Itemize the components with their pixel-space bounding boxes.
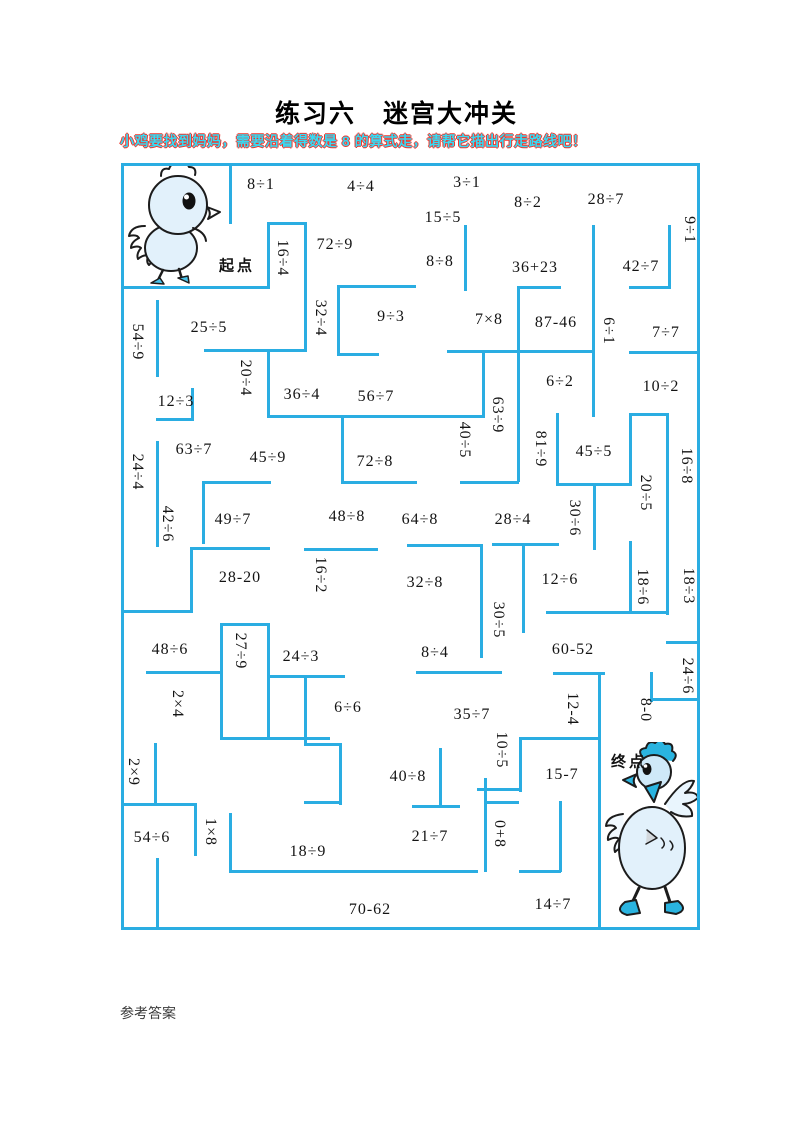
maze-expression: 16÷8 bbox=[677, 448, 695, 485]
maze-expression: 6÷6 bbox=[334, 699, 362, 717]
maze-expression: 8-0 bbox=[636, 698, 654, 722]
maze-expression: 6÷1 bbox=[599, 317, 617, 345]
maze-wall bbox=[156, 418, 194, 421]
maze-expression: 1×8 bbox=[201, 818, 219, 846]
maze-expression: 14÷7 bbox=[535, 896, 572, 914]
maze-expression: 63÷9 bbox=[488, 397, 506, 434]
maze-expression: 32÷8 bbox=[407, 574, 444, 592]
maze-wall bbox=[484, 801, 519, 804]
maze-wall bbox=[204, 349, 307, 352]
maze-wall bbox=[666, 641, 699, 644]
maze-expression: 8÷2 bbox=[514, 194, 542, 212]
maze-expression: 56÷7 bbox=[358, 388, 395, 406]
maze-wall bbox=[416, 671, 502, 674]
maze-wall bbox=[447, 350, 594, 353]
maze-expression: 32÷4 bbox=[311, 300, 329, 337]
maze-wall bbox=[121, 610, 192, 613]
maze-wall bbox=[492, 543, 559, 546]
maze-wall bbox=[650, 698, 699, 701]
maze-wall bbox=[629, 541, 632, 613]
maze-wall bbox=[412, 805, 460, 808]
maze-wall bbox=[559, 801, 562, 872]
maze-expression: 7×8 bbox=[475, 311, 503, 329]
maze-expression: 36÷4 bbox=[284, 386, 321, 404]
maze-expression: 48÷6 bbox=[152, 641, 189, 659]
maze-wall bbox=[121, 163, 124, 930]
start-chick-image bbox=[123, 164, 229, 286]
maze-expression: 12÷6 bbox=[542, 571, 579, 589]
maze-expression: 10÷2 bbox=[643, 378, 680, 396]
maze-wall bbox=[121, 286, 270, 289]
maze-wall bbox=[519, 737, 600, 740]
maze-wall bbox=[439, 748, 442, 807]
maze-wall bbox=[146, 671, 222, 674]
maze-wall bbox=[484, 778, 487, 872]
maze-wall bbox=[156, 858, 159, 928]
maze-wall bbox=[121, 927, 700, 930]
maze-wall bbox=[304, 675, 307, 745]
maze-expression: 49÷7 bbox=[215, 511, 252, 529]
maze-wall bbox=[519, 737, 522, 792]
maze-wall bbox=[666, 413, 669, 615]
maze-wall bbox=[464, 225, 467, 291]
maze-expression: 4÷4 bbox=[347, 178, 375, 196]
maze-wall bbox=[267, 623, 270, 740]
maze-expression: 18÷6 bbox=[633, 569, 651, 606]
maze-wall bbox=[304, 743, 342, 746]
end-label: 终点 bbox=[611, 751, 647, 772]
maze-wall bbox=[194, 803, 197, 856]
maze-expression: 45÷9 bbox=[250, 449, 287, 467]
maze-expression: 87-46 bbox=[535, 314, 577, 332]
maze-expression: 54÷6 bbox=[134, 829, 171, 847]
maze-expression: 70-62 bbox=[349, 901, 391, 919]
maze-wall bbox=[482, 350, 485, 417]
maze-expression: 9÷3 bbox=[377, 308, 405, 326]
maze-expression: 21÷7 bbox=[412, 828, 449, 846]
maze-wall bbox=[598, 672, 601, 930]
maze-wall bbox=[668, 225, 671, 289]
maze-expression: 12-4 bbox=[563, 692, 581, 725]
maze-wall bbox=[202, 481, 205, 544]
maze-expression: 16÷4 bbox=[273, 240, 291, 277]
maze-expression: 81÷9 bbox=[531, 431, 549, 468]
maze-expression: 2×4 bbox=[168, 690, 186, 718]
maze-expression: 3÷1 bbox=[453, 174, 481, 192]
maze-wall bbox=[519, 870, 561, 873]
maze-wall bbox=[121, 803, 197, 806]
maze-expression: 10÷5 bbox=[492, 732, 510, 769]
maze-wall bbox=[202, 481, 271, 484]
maze-wall bbox=[460, 481, 519, 484]
maze-expression: 7÷7 bbox=[652, 324, 680, 342]
maze-expression: 15÷5 bbox=[425, 209, 462, 227]
maze-wall bbox=[592, 225, 595, 417]
maze-wall bbox=[697, 163, 700, 930]
maze-wall bbox=[522, 543, 525, 633]
maze-expression: 28÷4 bbox=[495, 511, 532, 529]
maze-wall bbox=[267, 222, 270, 288]
maze-wall bbox=[156, 300, 159, 377]
maze-expression: 18÷3 bbox=[679, 568, 697, 605]
maze-expression: 63÷7 bbox=[176, 441, 213, 459]
maze-expression: 25÷5 bbox=[191, 319, 228, 337]
maze-wall bbox=[629, 351, 700, 354]
maze-expression: 20÷5 bbox=[636, 475, 654, 512]
maze-expression: 12÷3 bbox=[158, 393, 195, 411]
maze-expression: 42÷6 bbox=[158, 506, 176, 543]
maze-expression: 24÷3 bbox=[283, 648, 320, 666]
maze-wall bbox=[480, 545, 483, 658]
maze-wall bbox=[304, 222, 307, 352]
maze-wall bbox=[154, 743, 157, 806]
maze-wall bbox=[121, 163, 700, 166]
maze-wall bbox=[629, 413, 669, 416]
maze-wall bbox=[339, 743, 342, 805]
maze-wall bbox=[337, 285, 416, 288]
maze-expression: 30÷6 bbox=[565, 500, 583, 537]
maze-expression: 15-7 bbox=[545, 766, 578, 784]
maze-wall bbox=[337, 285, 340, 356]
maze-wall bbox=[556, 413, 559, 486]
start-label: 起点 bbox=[219, 255, 255, 276]
maze-expression: 28-20 bbox=[219, 569, 261, 587]
maze-wall bbox=[341, 416, 344, 484]
maze-wall bbox=[220, 623, 223, 740]
maze-wall bbox=[229, 870, 478, 873]
maze-expression: 72÷9 bbox=[317, 236, 354, 254]
maze-expression: 8÷8 bbox=[426, 253, 454, 271]
maze-expression: 60-52 bbox=[552, 641, 594, 659]
maze-expression: 8÷1 bbox=[247, 176, 275, 194]
maze-wall bbox=[229, 813, 232, 873]
maze-wall bbox=[267, 415, 485, 418]
maze-wall bbox=[341, 481, 417, 484]
answer-reference-label: 参考答案 bbox=[120, 1003, 176, 1023]
maze-expression: 28÷7 bbox=[588, 191, 625, 209]
maze-wall bbox=[267, 349, 270, 418]
maze-wall bbox=[407, 544, 483, 547]
maze-wall bbox=[229, 163, 232, 224]
maze-expression: 20÷4 bbox=[236, 360, 254, 397]
maze-expression: 24÷6 bbox=[678, 658, 696, 695]
maze-wall bbox=[267, 222, 307, 225]
maze: 起点 终点 8÷14÷43÷115÷58÷228÷79÷116÷472÷98÷8… bbox=[0, 0, 793, 1122]
maze-expression: 45÷5 bbox=[576, 443, 613, 461]
maze-wall bbox=[593, 485, 596, 550]
maze-expression: 0+8 bbox=[490, 820, 508, 848]
maze-expression: 27÷9 bbox=[231, 633, 249, 670]
maze-wall bbox=[629, 286, 670, 289]
maze-expression: 36+23 bbox=[512, 259, 558, 277]
maze-expression: 64÷8 bbox=[402, 511, 439, 529]
maze-wall bbox=[220, 737, 330, 740]
maze-expression: 8÷4 bbox=[421, 644, 449, 662]
maze-wall bbox=[220, 623, 270, 626]
maze-expression: 40÷5 bbox=[455, 422, 473, 459]
maze-expression: 30÷5 bbox=[489, 602, 507, 639]
maze-expression: 42÷7 bbox=[623, 258, 660, 276]
maze-expression: 72÷8 bbox=[357, 453, 394, 471]
maze-expression: 48÷8 bbox=[329, 508, 366, 526]
maze-expression: 2×9 bbox=[124, 758, 142, 786]
maze-expression: 35÷7 bbox=[454, 706, 491, 724]
maze-expression: 18÷9 bbox=[290, 843, 327, 861]
maze-wall bbox=[546, 611, 669, 614]
maze-expression: 54÷9 bbox=[128, 324, 146, 361]
worksheet-page: 练习六 迷宫大冲关 小鸡要找到妈妈，需要沿着得数是 8 的算式走，请帮它描出行走… bbox=[0, 0, 793, 1122]
maze-wall bbox=[517, 286, 561, 289]
maze-wall bbox=[629, 413, 632, 486]
maze-expression: 16÷2 bbox=[311, 557, 329, 594]
maze-expression: 9÷1 bbox=[680, 216, 698, 244]
maze-wall bbox=[190, 547, 193, 613]
maze-wall bbox=[190, 547, 270, 550]
maze-expression: 24÷4 bbox=[128, 454, 146, 491]
maze-wall bbox=[517, 286, 520, 482]
maze-wall bbox=[304, 548, 378, 551]
maze-expression: 6÷2 bbox=[546, 373, 574, 391]
maze-wall bbox=[304, 801, 342, 804]
maze-wall bbox=[337, 353, 379, 356]
maze-expression: 40÷8 bbox=[390, 768, 427, 786]
